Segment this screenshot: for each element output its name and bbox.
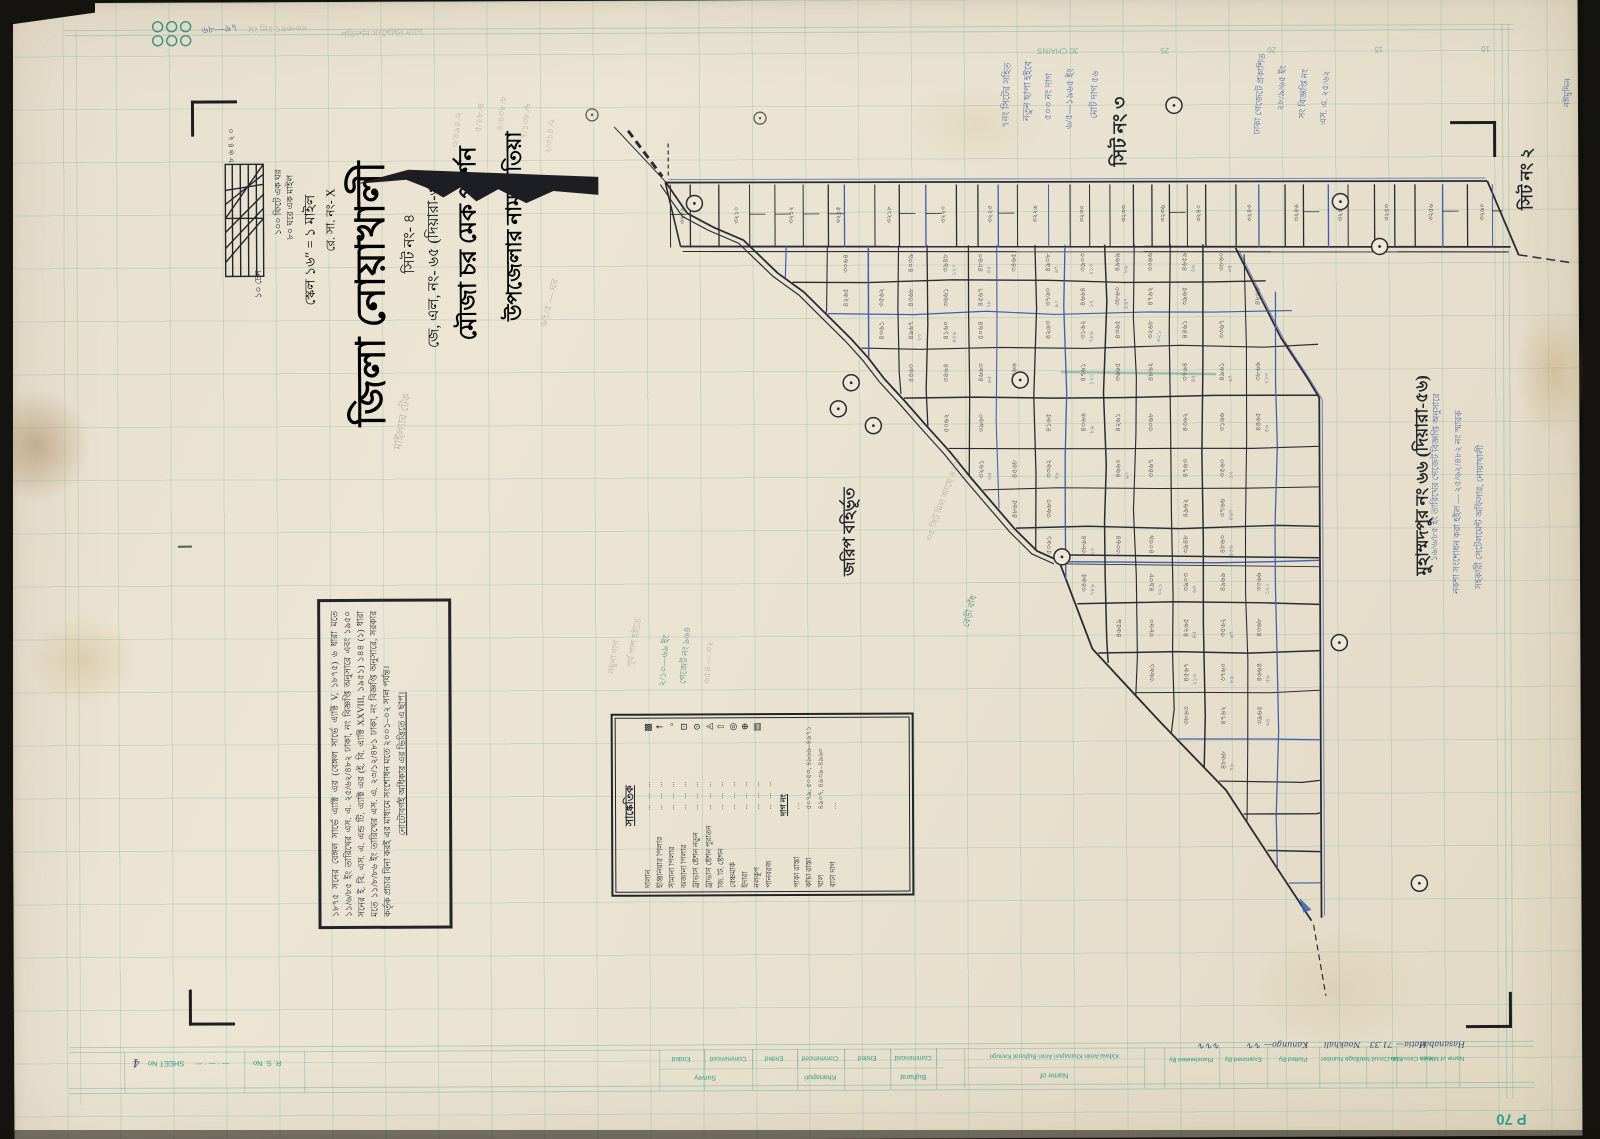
plot-number: ৩৫৬২ (1218, 618, 1227, 637)
plot-number: ৩৮৬৬ (1253, 362, 1262, 381)
form-amins-label: Kidwai Amin Khanapuri Amin Bujharat Kanu… (990, 1052, 1119, 1060)
plot-number: ৪০৩৯ (1147, 535, 1156, 554)
plot-number: ৪২৬১ (1113, 413, 1122, 432)
plot-number: ৪২৬৩ (1043, 320, 1052, 339)
plot-number-blue: ৫৬৭ (1124, 298, 1130, 310)
survey-station-dot (872, 424, 875, 427)
form-value-2: 71.33 (1370, 1040, 1393, 1049)
form-commenced-label: Commenced (802, 1054, 839, 1061)
survey-station-dot (1173, 104, 1176, 107)
plot-number: ৩৭৬০ (1043, 288, 1052, 307)
handwritten-annotation: নতুন ছাপা হইবে (1021, 61, 1038, 121)
parcel-row-line (1244, 813, 1320, 814)
form-col-2: Plotted By (1279, 1055, 1308, 1062)
parcel-row-line (904, 395, 1318, 399)
plot-number: ৩৭৬০ (1218, 663, 1227, 682)
strip-plot-number: ৩২১৫ (835, 206, 842, 223)
form-rule (1426, 1046, 1427, 1087)
plot-number-blue: ৩২১ (1157, 331, 1163, 343)
plot-number: ৩৫৬২ (877, 288, 886, 307)
survey-station-dot (1061, 555, 1064, 558)
form-ended-label: Ended (765, 1055, 784, 1062)
plot-number: ৩৯০৩ (1078, 253, 1087, 272)
plot-number-blue: ১২০ (1265, 583, 1271, 595)
plot-number: ৪৫৬৮ (1010, 459, 1019, 478)
plot-number: ৩৯৬৫ (1255, 706, 1264, 725)
cadastral-map: ৩২০৯৩২১০৩২১২৩২১৫৩২১৮৩২২০৩২২৩৩২২৬৩২৩০৩২৩৩… (10, 0, 1600, 1139)
parcel-row-line (1061, 560, 1319, 563)
handwritten-annotation: নঈমুদ্দিন (1560, 78, 1575, 108)
scan-edge-bottom (0, 1130, 1600, 1139)
plot-number: ৫০৬২ (941, 414, 950, 433)
handwritten-annotation: ৫০৩ নং দাগ (1042, 73, 1058, 120)
plot-number: ৪১৬০ (941, 321, 950, 340)
strip-plot-number: ৩২৩০ (1079, 205, 1086, 222)
plot-number: ৪৯০৮ (1147, 573, 1156, 592)
plot-number: ৪৮৬৮ (1253, 286, 1262, 305)
plot-number-blue: ৪৫ (987, 266, 993, 274)
east-west-road-2 (1059, 563, 1319, 568)
plot-number: ৪০৩৯ (906, 253, 915, 272)
plot-number: ৪১৬৫ (1044, 413, 1053, 432)
strip-plot-number: ৩২৩৬ (1160, 204, 1167, 222)
plot-number: ৪৮৬৮ (1219, 750, 1228, 769)
plot-number: ৪৩৬৮ (1254, 618, 1263, 637)
strip-plot-number: ৩২০৯ (679, 206, 686, 224)
plot-number-blue: ২১৩ (1089, 263, 1095, 275)
form-rule (244, 1051, 245, 1092)
plot-number: ৪২৬৫ (1181, 619, 1190, 638)
form-stage-survey: Survey (694, 1074, 716, 1081)
plot-number: ৪৪৬৫ (1253, 412, 1262, 431)
handwritten-annotation: ৭নং সিটের সহিত (999, 62, 1016, 127)
west-boundary-road (665, 179, 1311, 924)
strip-plot-number: ৩২২৩ (987, 205, 994, 223)
plot-number: ৪৫৬৭ (976, 288, 985, 307)
form-rule (704, 1049, 705, 1068)
form-col-0: Plansheeted By (1169, 1056, 1213, 1063)
form-signature: ∿∿∿ (1198, 1040, 1221, 1050)
form-col-6: Name of Mauza (1420, 1055, 1464, 1062)
form-commenced-label: Commenced (710, 1055, 747, 1062)
pencil-circle-dot (591, 114, 593, 116)
plot-number: ৩৪৬৫ (1079, 573, 1088, 592)
strip-plot-number: ৩২১০ (733, 207, 740, 224)
parcel-column-line (898, 246, 901, 394)
plot-number-blue: ২৩ (1090, 548, 1096, 556)
plot-number: ৪৬৬৪ (1078, 287, 1087, 306)
plot-number-blue: ৪৫৬ (952, 331, 958, 343)
plot-number: ৩০৬৪ (1114, 535, 1123, 554)
plot-number-blue: ৭৮ (1230, 763, 1236, 771)
plot-number: ৩১৬৬ (1217, 412, 1226, 431)
form-signature: ∿∿ (1247, 1040, 1262, 1050)
plot-number: ৩৪৬৪ (941, 363, 950, 382)
sheet-boundary-dash (1519, 255, 1571, 263)
survey-station-dot (1378, 245, 1381, 248)
parcel-column-line (926, 245, 929, 426)
plot-number: ৪৯৬৯ (1112, 253, 1121, 272)
plot-number: ৪০৬১ (877, 321, 886, 340)
plot-number-blue: ১২০ (952, 264, 958, 276)
plot-number: ৩০৬৬ (1254, 572, 1263, 591)
plot-number-blue: ৬৫ (987, 376, 993, 384)
plot-number: ৪৯৬৭ (906, 321, 915, 340)
plot-number: ৪৬৬০ (1113, 459, 1122, 478)
form-rule (936, 1048, 937, 1067)
parcel-row-line (983, 487, 1318, 490)
plot-number-blue: ৯০ (1124, 471, 1130, 479)
plot-number: ৪৪৬১ (1180, 320, 1189, 339)
handwritten-annotation: ১৬/৬/৮৫ ইং তারিখের গেজেট বিজ্ঞপ্তি অনুসা… (1427, 393, 1444, 561)
form-stage-bujharat: Bujharat (900, 1073, 926, 1080)
form-value-1: Hatia— (1396, 1040, 1426, 1049)
plot-number: ৩৮৬৪ (1079, 535, 1088, 554)
plot-number-blue: ৭৮৯ (1090, 584, 1096, 596)
form-rule (797, 1049, 798, 1068)
form-rule (124, 1052, 125, 1093)
plot-number: ৩০৬৬ (1145, 252, 1154, 271)
plot-number-blue: ২১৩ (1192, 674, 1198, 686)
scanned-map-sheet: উপজেলার নাম হাতিয়া মৌজা চর মেক পার্শন জ… (0, 0, 1600, 1139)
form-rule (659, 1050, 660, 1091)
survey-station-dot (693, 202, 696, 205)
plot-number: ৪৬৫৯ (1180, 252, 1189, 271)
plot-number: ৩৮৬৩ (1182, 706, 1191, 725)
plot-number-blue: ৮৯ (1090, 426, 1096, 434)
survey-station-dot (1019, 379, 1022, 382)
handwritten-annotation: ২৮/৯/৬৫ ইং (1273, 65, 1291, 111)
plot-number: ৪২৬৫ (841, 288, 850, 307)
strip-plot-number: ৩২৫৬ (1428, 203, 1435, 221)
plot-number: ৩৪৬৫ (1009, 253, 1018, 272)
form-col-3: Village Number (1321, 1055, 1364, 1062)
plot-number: ৩১৬২ (1078, 320, 1087, 339)
parcel-row-line (861, 344, 1318, 349)
parcel-row-line (949, 446, 1319, 449)
strip-plot-number: ৩২২০ (940, 206, 947, 223)
plot-number-blue: ৮৯ (1229, 675, 1235, 683)
plot-number-blue: ৮৯ (1124, 265, 1130, 273)
plot-number: ৪৯৬১ (1217, 362, 1226, 381)
parcel-row-line (1267, 850, 1320, 852)
apex-line (614, 127, 665, 182)
form-value-4: Kanungo— (1264, 1040, 1308, 1049)
strip-plot-number: ৩২৪০ (1195, 205, 1202, 222)
strip-plot-number: ৩২১৮ (886, 205, 893, 223)
plot-number-blue: ৬৭ (1228, 375, 1234, 383)
plot-number: ৩৯০৩ (1181, 573, 1190, 592)
parcel-column-line (1244, 254, 1248, 820)
parcel-row-line (1219, 780, 1320, 782)
plot-number: ৩০৬৮ (1146, 413, 1155, 432)
plot-number: ৩৩৬২ (1044, 459, 1053, 478)
plot-number: ৪৬৬৪ (1254, 663, 1263, 682)
plot-number: ৪৫৬৭ (1181, 663, 1190, 682)
plot-number: ৩০৬৪ (841, 254, 850, 273)
plot-number-blue: ১২ (1089, 300, 1095, 308)
parcel-column-line (1103, 245, 1109, 663)
parcel-column-line (785, 246, 786, 278)
survey-station-dot (1338, 641, 1341, 644)
survey-station-dot (1339, 200, 1342, 203)
strip-plot-number: ৩২১২ (788, 207, 795, 224)
strip-plot-number: ৩২৫৩ (1384, 203, 1391, 221)
plot-number: ৪৮৬৫ (1010, 500, 1019, 519)
form-rule (752, 1049, 753, 1068)
form-rs-no-label: R. S. No (253, 1059, 281, 1068)
plot-number-blue: ৬৫ (1192, 585, 1198, 593)
parcel-column-line (1063, 245, 1067, 580)
plot-number: ৩৬৬৩ (1044, 499, 1053, 518)
parcel-row-line (1179, 738, 1320, 740)
strip-plot-number: ৩২৪৩ (1246, 204, 1253, 222)
plot-number: ৪৭৬৩ (1181, 459, 1190, 478)
parcel-column-line (825, 246, 827, 315)
plot-number-blue: ৬৭ (1054, 265, 1060, 273)
plot-number: ৪৫৬০ (906, 364, 915, 383)
plot-number: ৪৮৬০ (1218, 535, 1227, 554)
form-dashes: — · — · — (195, 1060, 228, 1067)
plot-number-blue: ৯০ (1054, 300, 1060, 308)
plot-number: ৪৬৫৯ (1114, 619, 1123, 638)
form-page-number: P 70 (1496, 1110, 1527, 1127)
strip-plot-number: ৩২২৬ (1032, 205, 1039, 223)
plot-number: ৩৫৬০ (1217, 459, 1226, 478)
form-rule (1396, 1046, 1397, 1087)
plot-number: ৫০৬৪ (976, 321, 985, 340)
plot-number-blue: ৬৭ (1229, 631, 1235, 639)
plot-number: ৪৩৬৮ (906, 288, 915, 307)
form-rule (844, 1049, 845, 1068)
form-rule (1319, 1047, 1320, 1088)
scan-edge-left (0, 0, 13, 1139)
plot-number: ৪৯০৮ (1043, 253, 1052, 272)
form-ended-label: Ended (858, 1054, 877, 1061)
plot-number-blue: ৩৪ (1228, 265, 1234, 273)
form-sheet-no-value: 4 (133, 1056, 140, 1069)
plot-number-blue: ৩৪ (988, 472, 994, 480)
survey-station-dot (850, 381, 853, 384)
scan-edge-right (1583, 0, 1600, 1139)
parcel-column-line (995, 245, 999, 508)
parcel-row-line (1077, 601, 1319, 605)
plot-number: ৩৬৬১ (941, 288, 950, 307)
plot-number: ৩৮৬০ (1147, 619, 1156, 638)
handwritten-annotation: সহকারী সেটেলমেন্ট অফিসার, নোয়াখালী (1471, 445, 1488, 590)
strip-plot-number: ৩২৪৬ (1293, 204, 1300, 222)
form-ended-label: Ended (672, 1055, 691, 1062)
handwritten-annotation: পরিদর্শন সংশোধন ম্যাপ (341, 25, 423, 43)
handwritten-annotation: মোট দাগ ৫৬ (1088, 70, 1104, 119)
handwritten-annotation: নকশা সংশোধন করা হইল — ২৫/৬২/৪৮২ নং স্মার… (1449, 410, 1466, 593)
plot-number-blue: ২১৩ (1264, 373, 1270, 385)
plot-number: ৪৭৬১ (1078, 363, 1087, 382)
plot-number-blue: ৩৪ (1266, 718, 1272, 726)
plot-number: ৩৯৬০ (976, 414, 985, 433)
strip-plot-number: ৩২৬০ (1479, 204, 1486, 221)
strip-plot-number: ৩২৩৩ (1121, 204, 1128, 222)
form-rule (1164, 1047, 1165, 1088)
form-rule (1267, 1047, 1268, 1088)
parcel-row-line (828, 310, 1292, 316)
plot-number-blue: ৭৮ (1055, 472, 1061, 480)
parcel-row-line (792, 278, 1265, 283)
form-col-1: Examined By (1225, 1055, 1262, 1062)
parcel-column-line (1201, 244, 1206, 767)
form-name-of-label: Name of (1040, 1071, 1068, 1080)
parcel-column-line (1033, 245, 1037, 549)
plot-number: ৩৩৬৭ (1217, 320, 1226, 339)
plot-number: ৩৯৪৮ (1181, 535, 1190, 554)
survey-station-dot (837, 407, 840, 410)
form-rule (964, 1048, 965, 1089)
east-boundary-blue (1239, 250, 1325, 916)
apex-arrow-dash (628, 131, 662, 177)
plot-number: ৩২৬১ (976, 460, 985, 479)
plot-number: ৩৬৬৫ (1113, 363, 1122, 382)
plot-number: ৪৮৬২ (1146, 363, 1155, 382)
plot-number: ৩৮৬০ (1217, 252, 1226, 271)
plot-number: ৩৪৬৭ (1146, 459, 1155, 478)
plot-number: ৩৯৪৮ (941, 253, 950, 272)
plot-number: ৩৭৬৪ (1180, 362, 1189, 381)
plot-number: ৩২৬৮ (1146, 320, 1155, 339)
pencil-circle-dot (759, 117, 761, 119)
form-value-3: Noakhali (1324, 1040, 1361, 1049)
plot-number-blue: ৫৬ (1266, 675, 1272, 683)
form-rule (1219, 1047, 1220, 1088)
plot-number: ৪৩৬৫ (1113, 320, 1122, 339)
parcel-row-line (1098, 651, 1319, 654)
form-sheet-no-label: SHEET No (148, 1059, 185, 1068)
survey-station-dot (1418, 882, 1421, 885)
plot-number: ৪৬৬৩ (976, 363, 985, 382)
form-commenced-label: Commenced (895, 1054, 932, 1061)
plot-number-blue: ৭৮ (987, 300, 993, 308)
plot-number-blue: ৪৫৬ (1229, 545, 1235, 557)
vertex-continuation (1314, 925, 1326, 996)
plot-number: ৫০৬১ (1044, 535, 1053, 554)
parcel-column-line (868, 246, 869, 358)
handwritten-annotation: ৬৮—৯৭ (201, 21, 238, 41)
form-rule (890, 1049, 891, 1068)
plot-number: ৩৭৬৬ (1218, 498, 1227, 517)
plot-number: ৩৮৬৩ (1113, 287, 1122, 306)
form-rule (1459, 1046, 1460, 1087)
east-boundary (1236, 248, 1322, 918)
plot-number-blue: ৫৬ (1264, 425, 1270, 433)
plot-number-blue: ৫৬ (1191, 265, 1197, 273)
plot-number-blue: ৩২১ (1158, 583, 1164, 595)
plot-number: ৪৭৬২ (1145, 287, 1154, 306)
plot-number: ৪৯৬২ (1181, 499, 1190, 518)
strip-top-edge (665, 179, 1487, 185)
paper-sheet: উপজেলার নাম হাতিয়া মৌজা চর মেক পার্শন জ… (10, 0, 1583, 1139)
plot-number: ৪৭৬২ (1218, 706, 1227, 725)
plot-number-blue: ৫৬৭ (1229, 509, 1235, 521)
handwritten-annotation: ৬/৫—১৯৬৫ ইং (1063, 68, 1080, 129)
plot-number-blue: ১২০ (1089, 373, 1095, 385)
form-stage-khanapuri: Khanapuri (804, 1073, 836, 1080)
plot-number: ৩৬৬১ (1147, 663, 1156, 682)
plot-number-blue: ১২ (1228, 471, 1234, 479)
form-rule (1366, 1047, 1367, 1088)
form-rule (304, 1051, 305, 1092)
plot-number-blue: ২৩ (917, 334, 923, 342)
plot-number-blue: ৭৮৯ (1089, 331, 1095, 343)
plot-number-blue: ৪৫ (1192, 631, 1198, 639)
plot-number: ৪৩৬২ (1180, 413, 1189, 432)
plot-number: ৪৯৬৯ (1218, 572, 1227, 591)
parcel-row-line (1135, 690, 1320, 693)
plot-number: ৩৯৬৫ (1180, 287, 1189, 306)
form-rule (1144, 1047, 1145, 1088)
plot-number-blue: ৪৫ (1191, 375, 1197, 383)
parcel-row-line (1016, 525, 1319, 529)
plot-number: ৪৮৬০ (976, 253, 985, 272)
plot-number: ৪০৬৬ (1079, 413, 1088, 432)
